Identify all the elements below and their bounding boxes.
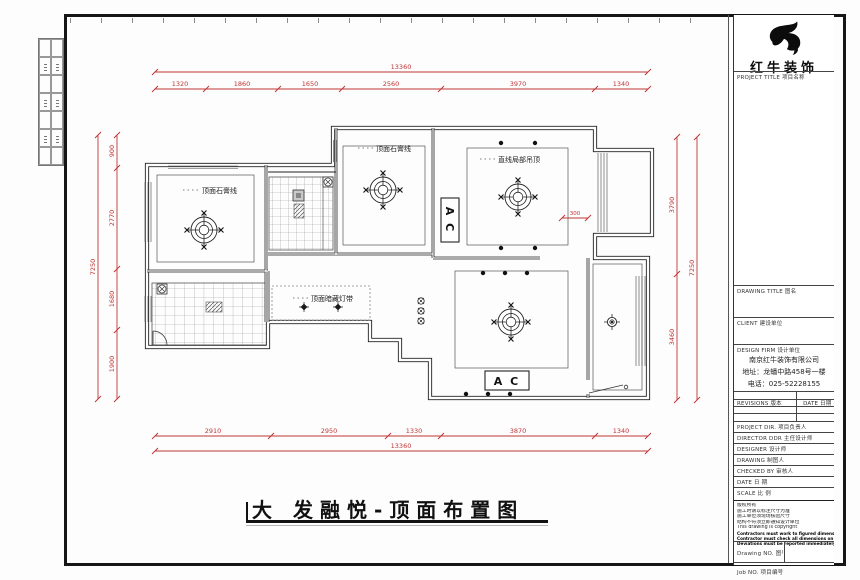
spotlight-diamond-icon	[299, 302, 309, 312]
drawing-sheet: 顶面石膏线 顶面石膏线 直线局部吊顶 顶面暗藏灯带 A C A C	[0, 0, 860, 580]
dim-bottom-1: 2910	[205, 427, 222, 435]
ceiling-lamp-icon	[364, 171, 403, 210]
ceiling-lamp-icon	[492, 303, 531, 342]
dim-right-1: 3790	[668, 197, 676, 214]
ceiling-lamp-icon	[499, 178, 538, 217]
spotlight-diamond-icon	[333, 302, 343, 312]
bathroom-fixtures	[293, 190, 304, 218]
dim-top-1: 1320	[172, 80, 189, 88]
design-firm-address: 地址：龙蟠中路458号一楼	[734, 366, 834, 378]
dim-left-1: 900	[108, 145, 116, 157]
job-no-label: Job NO. 项目编号	[734, 567, 783, 576]
dim-top-2: 1860	[234, 80, 251, 88]
downlight-dots	[464, 141, 537, 396]
dim-bottom-5: 1340	[613, 427, 630, 435]
ac-unit-vertical: A C	[441, 198, 459, 242]
ac-label-vertical: A C	[443, 207, 456, 233]
drawing-no-label: Drawing NO. 图号	[734, 548, 783, 557]
dim-top-6: 1340	[613, 80, 630, 88]
scale-label: SCALE 比 例	[734, 488, 834, 497]
title-underline	[246, 520, 548, 523]
drafter-label: DRAWING 制图人	[734, 455, 834, 464]
client-label: CLIENT 建设单位	[734, 318, 834, 327]
design-firm-label: DESIGN FIRM 设计单位	[734, 345, 834, 354]
room-labels: 顶面石膏线 顶面石膏线 直线局部吊顶 顶面暗藏灯带	[183, 144, 540, 303]
title-underline-thin	[246, 525, 548, 526]
dim-left-3: 1680	[108, 291, 116, 308]
design-firm-name: 南京红牛装饰有限公司	[734, 354, 834, 366]
dim-top-5: 3970	[510, 80, 527, 88]
dim-left-4: 1900	[108, 356, 116, 373]
design-firm-phone: 电话：025-52228155	[734, 378, 834, 390]
dim-right-2: 3460	[668, 329, 676, 346]
spotlight-rosette-icon	[418, 318, 424, 324]
balcony-lamp-icon	[604, 314, 620, 330]
dim-top-3: 1650	[302, 80, 319, 88]
concealed-light-strip-outline	[272, 286, 370, 320]
drawing-title-label: DRAWING TITLE 图名	[734, 286, 834, 295]
ac-label-horizontal: A C	[494, 375, 520, 388]
label-gypsum-left: 顶面石膏线	[202, 186, 237, 195]
dim-top-4: 2560	[383, 80, 400, 88]
project-dir-label: PROJECT DIR. 项目负责人	[734, 422, 834, 431]
dim-bottom-total: 13360	[391, 442, 412, 450]
designer-label: DESIGNER 设计师	[734, 444, 834, 453]
kitchen-light-fixture	[206, 302, 222, 312]
ceiling-plan-canvas: 顶面石膏线 顶面石膏线 直线局部吊顶 顶面暗藏灯带 A C A C	[0, 0, 860, 580]
dim-left-total: 7250	[89, 259, 97, 276]
ceiling-lamp-icon	[185, 211, 224, 250]
kitchen-ceiling-grid	[152, 283, 268, 345]
exhaust-fan-icon	[157, 284, 167, 294]
dim-small-300: 300	[570, 211, 581, 217]
dim-bottom-4: 3870	[510, 427, 527, 435]
date-label: DATE 日 期	[734, 477, 834, 486]
dim-bottom-2: 2950	[321, 427, 338, 435]
label-gypsum-mid: 顶面石膏线	[376, 144, 411, 153]
company-logo: 红牛装饰	[734, 15, 834, 71]
label-partial-drop-ceiling: 直线局部吊顶	[498, 155, 540, 164]
dim-right-total: 7250	[688, 260, 696, 277]
director-label: DIRECTOR DDR 主任设计师	[734, 433, 834, 442]
title-block: 红牛装饰 PROJECT TITLE 项目名称 DRAWING TITLE 图名…	[733, 15, 834, 565]
dim-left-2: 2770	[108, 210, 116, 227]
bull-logo-icon	[754, 17, 814, 55]
dim-top-total: 13360	[391, 63, 412, 71]
exhaust-fan-icon	[323, 177, 333, 187]
dim-bottom-3: 1330	[406, 427, 423, 435]
spotlight-rosette-icon	[418, 298, 424, 304]
project-title-label: PROJECT TITLE 项目名称	[734, 72, 834, 81]
spotlight-rosette-icon	[418, 308, 424, 314]
checked-by-label: CHECKED BY 审核人	[734, 466, 834, 475]
label-concealed-light-strip: 顶面暗藏灯带	[311, 294, 353, 303]
drawing-title: 大 发融悦-顶面布置图	[252, 494, 524, 523]
ac-unit-horizontal: A C	[485, 371, 529, 390]
